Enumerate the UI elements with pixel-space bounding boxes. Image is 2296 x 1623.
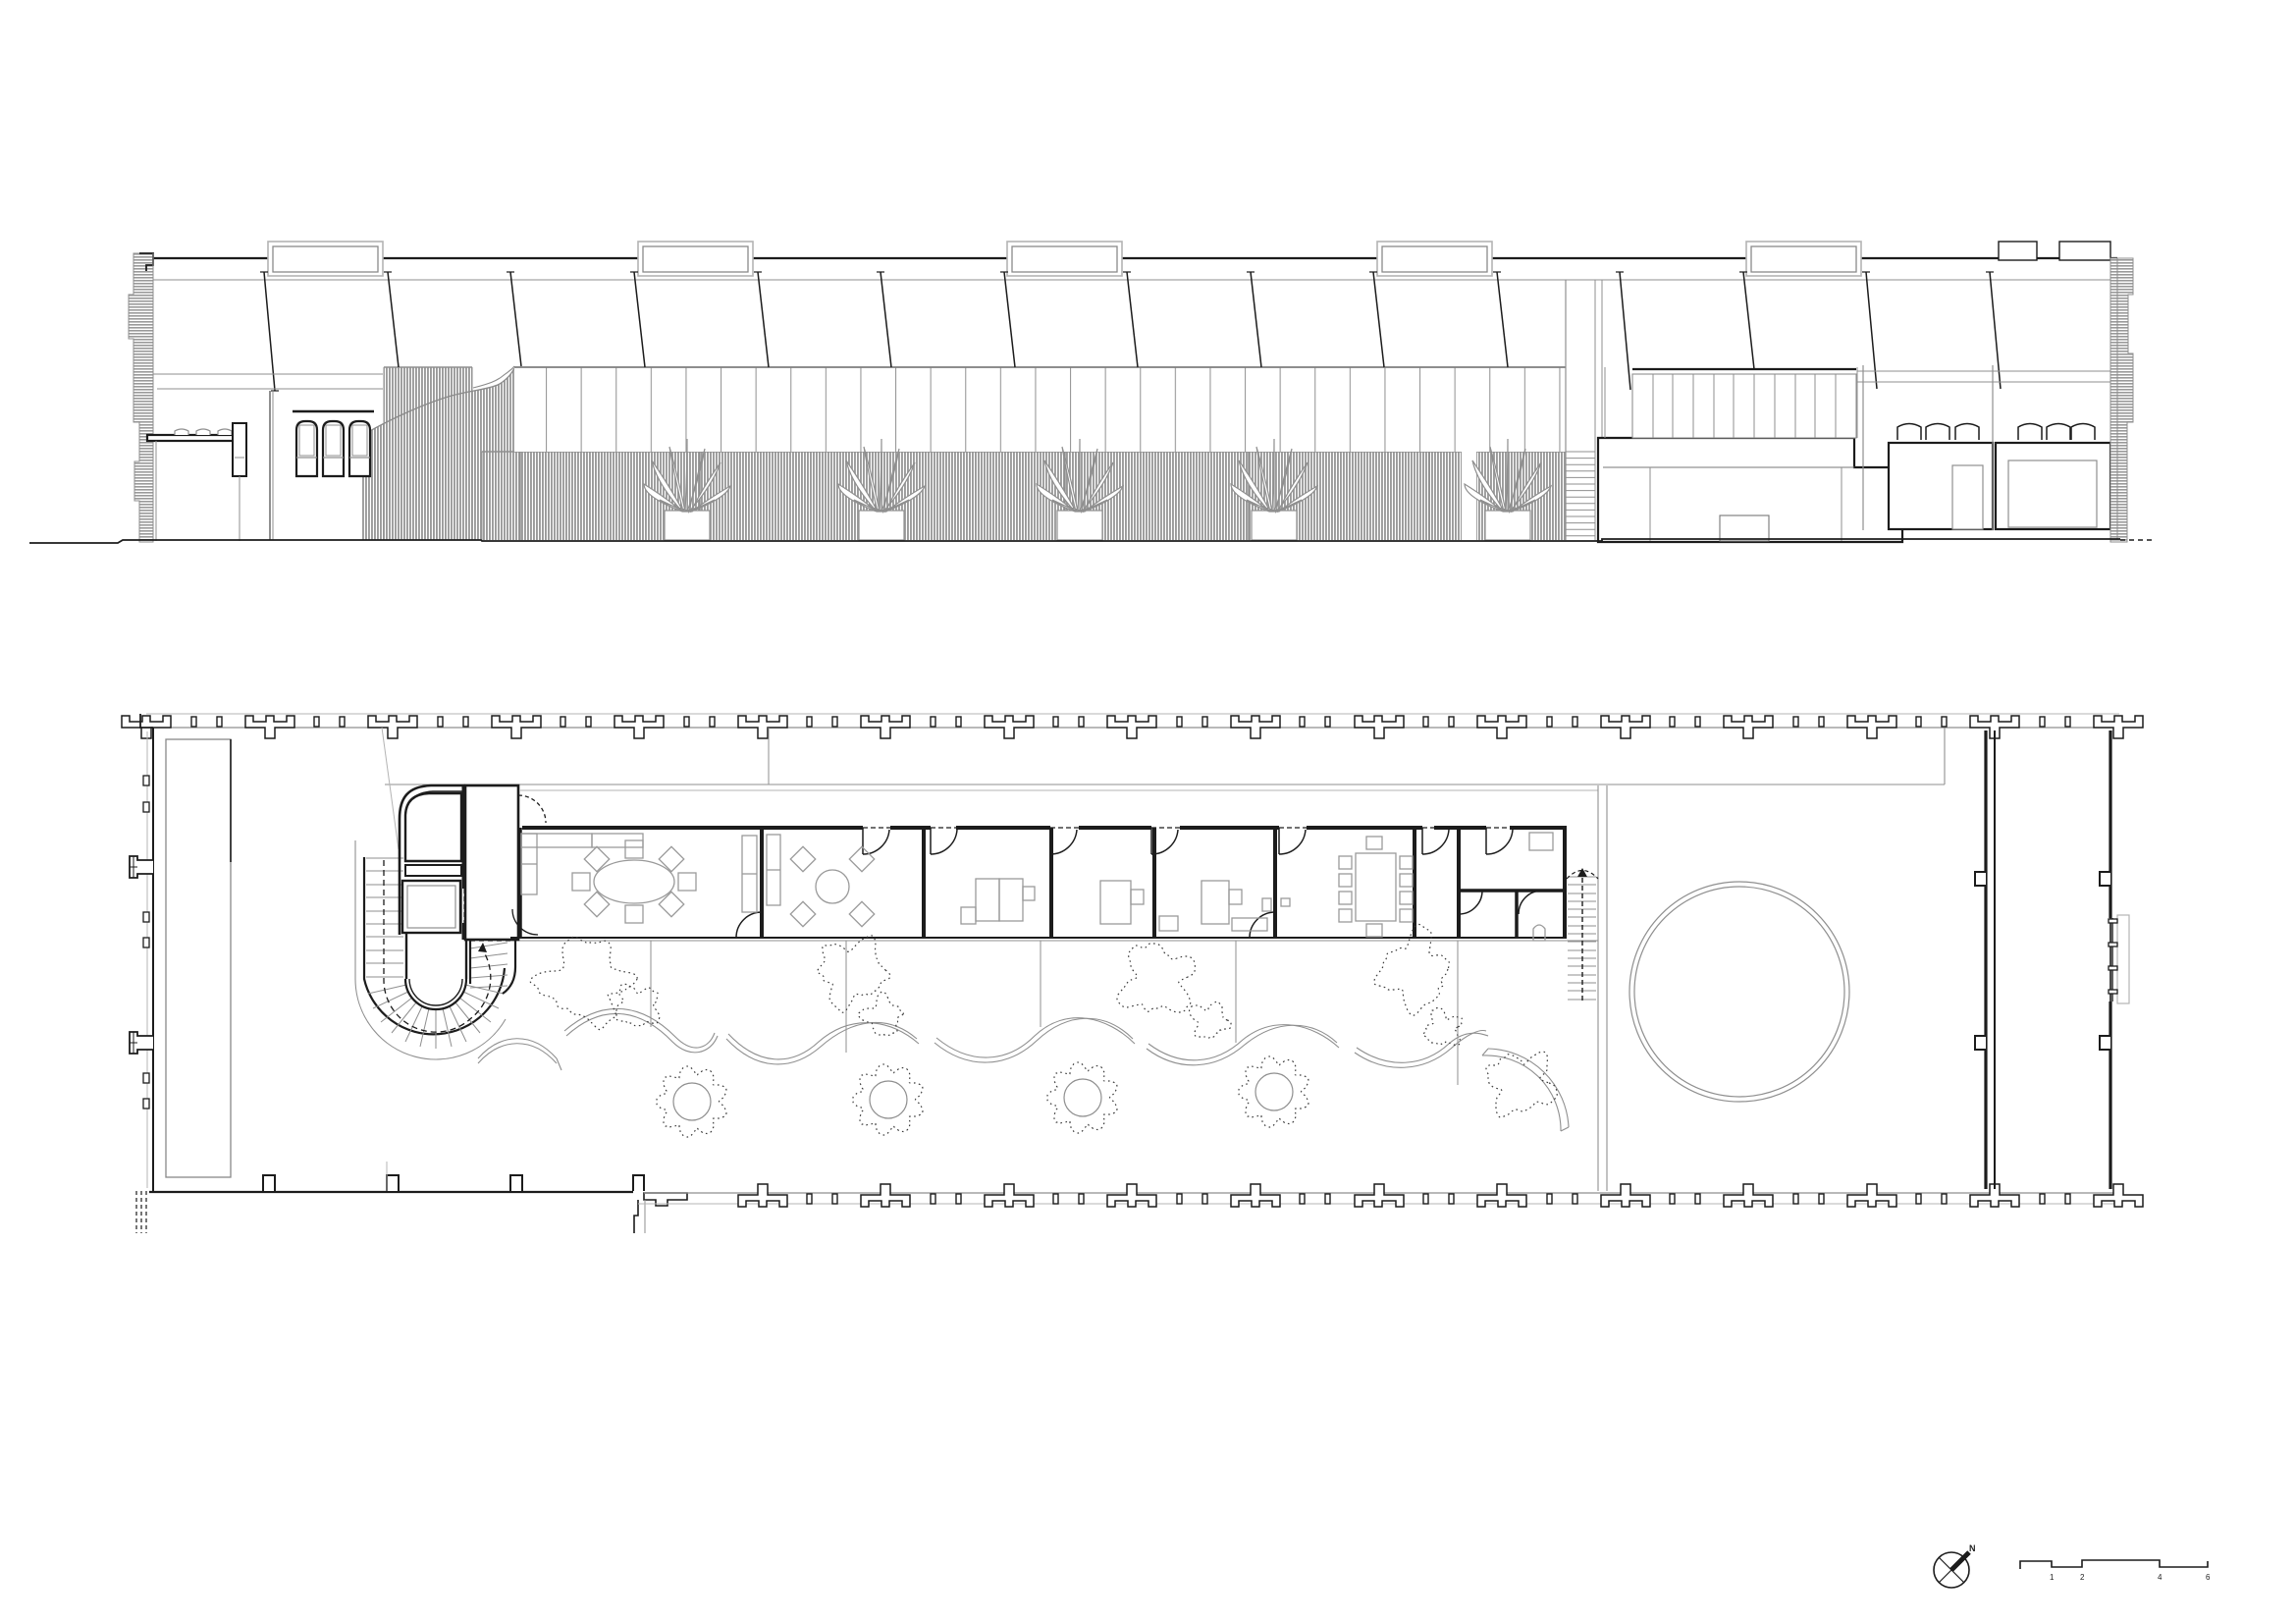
svg-text:4: 4: [2158, 1573, 2163, 1582]
svg-text:1: 1: [2050, 1573, 2055, 1582]
svg-text:2: 2: [2080, 1573, 2085, 1582]
svg-text:N: N: [1969, 1543, 1976, 1553]
svg-text:6: 6: [2206, 1573, 2211, 1582]
